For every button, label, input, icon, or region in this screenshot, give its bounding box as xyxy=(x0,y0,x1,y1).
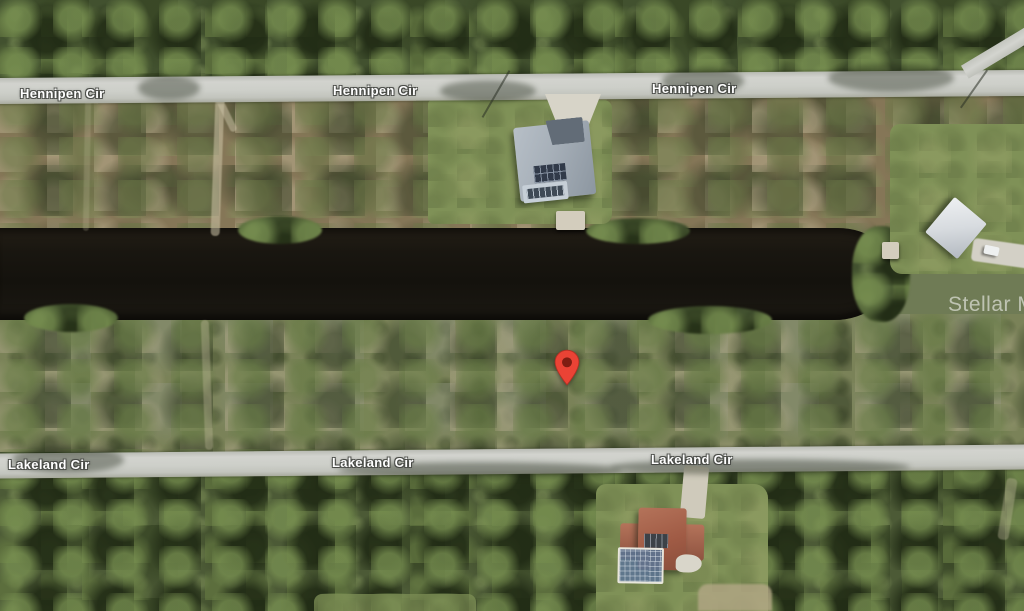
watermark-stellar-mls: Stellar MLS xyxy=(948,293,1024,317)
solar-panels xyxy=(533,163,567,183)
porch-windows xyxy=(526,185,564,199)
street-label-hennipen-cir-3: Hennipen Cir xyxy=(652,81,737,96)
boat-dock-north xyxy=(556,211,585,230)
street-label-lakeland-cir-3: Lakeland Cir xyxy=(651,452,733,467)
satellite-map-view[interactable]: Hennipen Cir Hennipen Cir Hennipen Cir L… xyxy=(0,0,1024,611)
scrub-band-lower xyxy=(0,314,1024,460)
tree-clump xyxy=(648,306,772,334)
boat-dock-east xyxy=(882,242,899,259)
street-label-hennipen-cir-1: Hennipen Cir xyxy=(20,86,105,101)
tree-shadow xyxy=(138,76,200,100)
tree-clump xyxy=(238,216,322,244)
house-north-gray-roof xyxy=(500,113,609,215)
roof xyxy=(925,197,987,259)
house-east-white-roof xyxy=(926,196,984,262)
tree-shadow xyxy=(828,64,954,92)
tree-clump xyxy=(24,304,118,332)
pin-center-dot xyxy=(562,357,572,367)
street-label-lakeland-cir-2: Lakeland Cir xyxy=(332,455,414,470)
canal-waterway xyxy=(0,228,894,320)
pool-enclosure xyxy=(617,547,664,584)
sand-clearing xyxy=(698,584,772,611)
house-south-red-roof xyxy=(617,507,708,587)
porch xyxy=(522,181,569,204)
tree-shadow xyxy=(440,80,536,102)
pool-deck xyxy=(676,554,702,572)
solar-panels xyxy=(644,534,668,548)
street-label-hennipen-cir-2: Hennipen Cir xyxy=(333,83,418,98)
location-pin-icon[interactable] xyxy=(554,349,580,386)
lawn-strip-bottom-edge xyxy=(314,594,476,611)
street-label-lakeland-cir-1: Lakeland Cir xyxy=(8,457,90,472)
pin-body xyxy=(555,350,579,385)
